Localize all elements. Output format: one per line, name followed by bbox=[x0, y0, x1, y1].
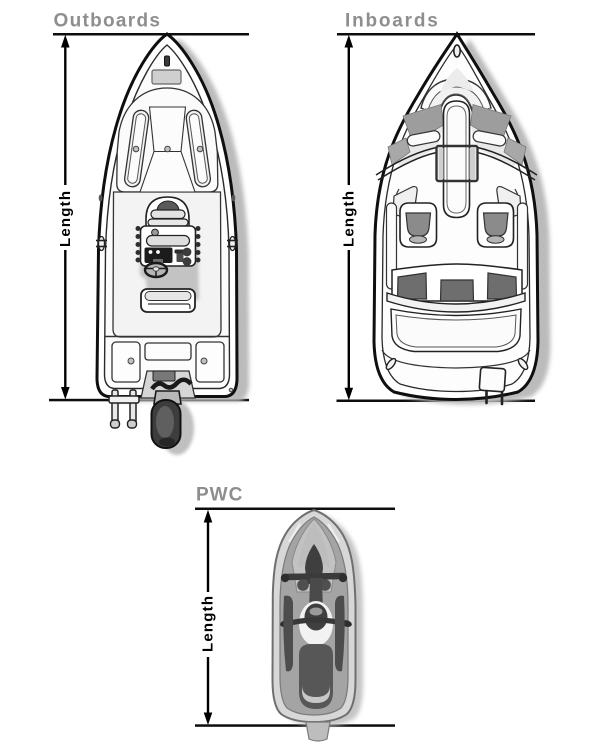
svg-text:Length: Length bbox=[341, 190, 358, 247]
svg-text:PWC: PWC bbox=[196, 485, 243, 506]
svg-text:Inboards: Inboards bbox=[345, 11, 440, 32]
svg-text:Length: Length bbox=[57, 190, 74, 247]
svg-text:Length: Length bbox=[200, 595, 217, 652]
svg-text:Outboards: Outboards bbox=[54, 11, 162, 32]
